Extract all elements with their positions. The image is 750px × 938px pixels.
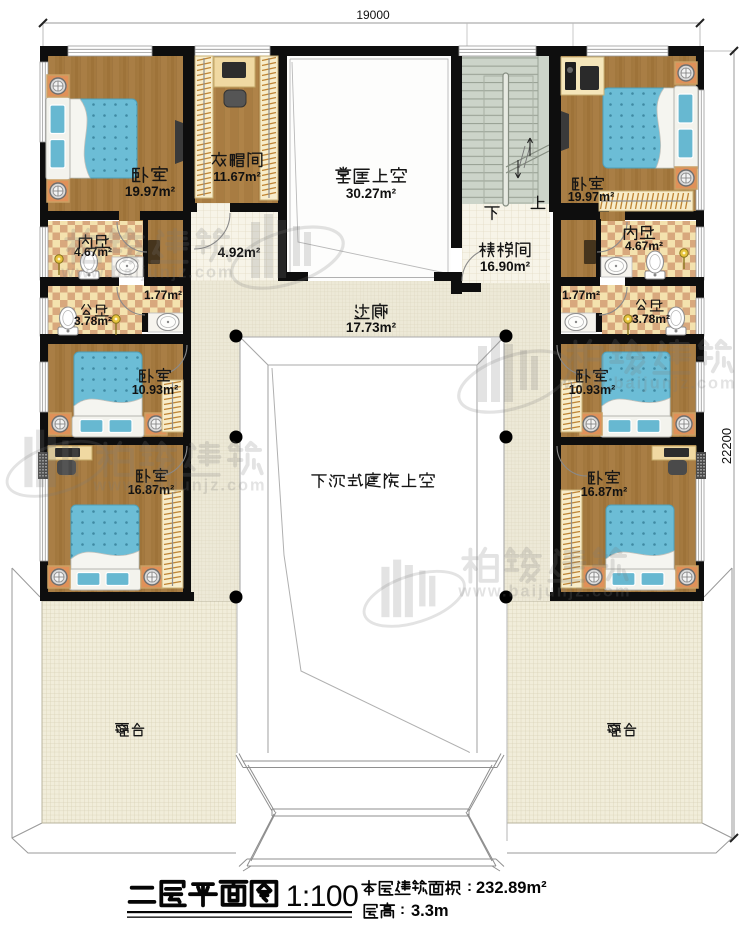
svg-text:16.90m²: 16.90m² — [480, 259, 531, 274]
svg-text:3.3m: 3.3m — [411, 902, 449, 920]
svg-text:19.97m²: 19.97m² — [568, 190, 615, 204]
svg-text:1.77m²: 1.77m² — [144, 288, 182, 302]
svg-text:1:100: 1:100 — [286, 880, 359, 913]
svg-text:www.baijunjz.com: www.baijunjz.com — [562, 374, 736, 392]
svg-text:22200: 22200 — [719, 428, 734, 464]
svg-text:4.67m²: 4.67m² — [625, 239, 663, 253]
svg-text:19.97m²: 19.97m² — [125, 184, 176, 199]
svg-text:10.93m²: 10.93m² — [132, 383, 179, 397]
svg-text:3.78m²: 3.78m² — [74, 314, 112, 328]
svg-text:www.baijunjz.com: www.baijunjz.com — [92, 476, 266, 494]
svg-text:16.87m²: 16.87m² — [581, 485, 628, 499]
svg-text:www.baijunjz.com: www.baijunjz.com — [60, 263, 234, 281]
svg-text:1.77m²: 1.77m² — [562, 288, 600, 302]
svg-text:3.78m²: 3.78m² — [632, 312, 670, 326]
svg-text:232.89m²: 232.89m² — [476, 879, 547, 897]
svg-text:19000: 19000 — [356, 8, 390, 22]
svg-text::: : — [467, 878, 472, 895]
svg-text:30.27m²: 30.27m² — [346, 186, 397, 201]
svg-text:www.baijunjz.com: www.baijunjz.com — [457, 582, 631, 600]
svg-text:17.73m²: 17.73m² — [346, 320, 397, 335]
svg-text::: : — [400, 901, 405, 918]
svg-text:11.67m²: 11.67m² — [213, 169, 261, 184]
